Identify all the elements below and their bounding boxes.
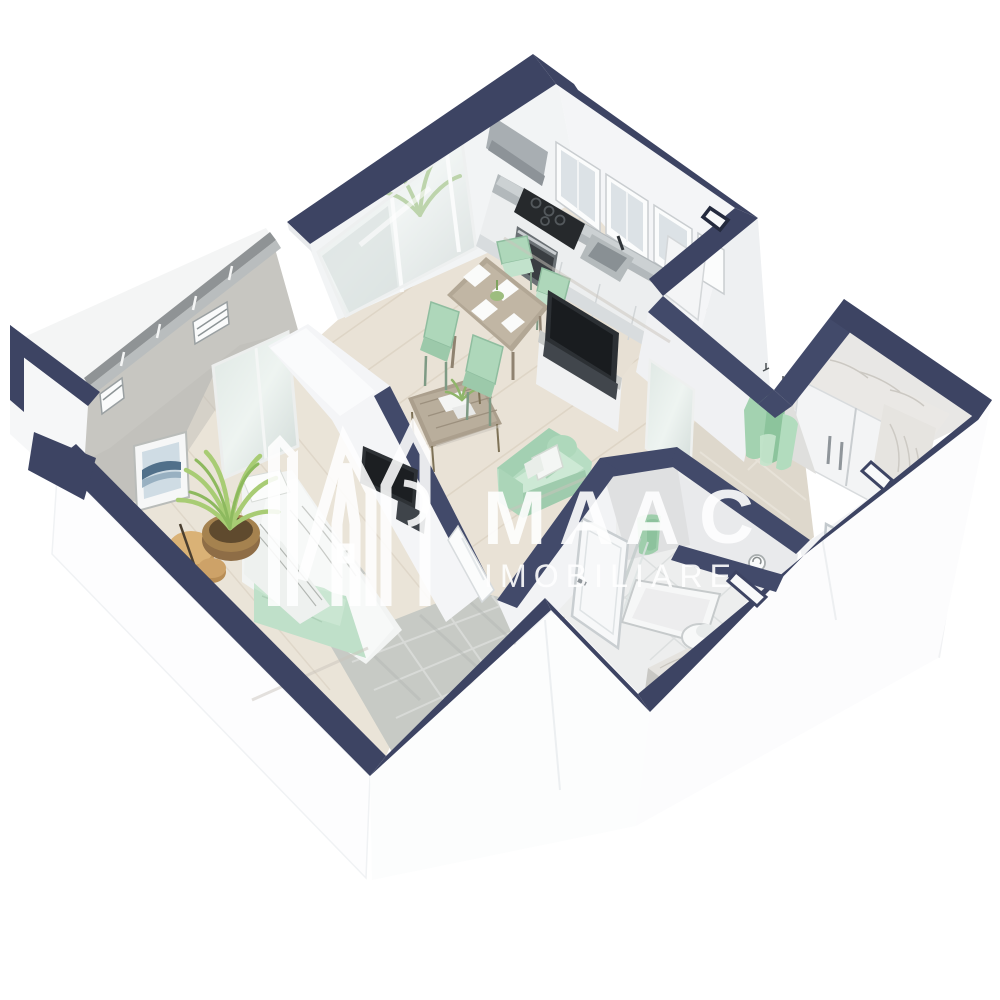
svg-text:C: C: [699, 475, 754, 560]
svg-text:IMOBILIARE: IMOBILIARE: [484, 558, 737, 594]
svg-text:A: A: [559, 476, 614, 561]
svg-text:M: M: [483, 476, 546, 561]
svg-text:A: A: [625, 476, 680, 561]
